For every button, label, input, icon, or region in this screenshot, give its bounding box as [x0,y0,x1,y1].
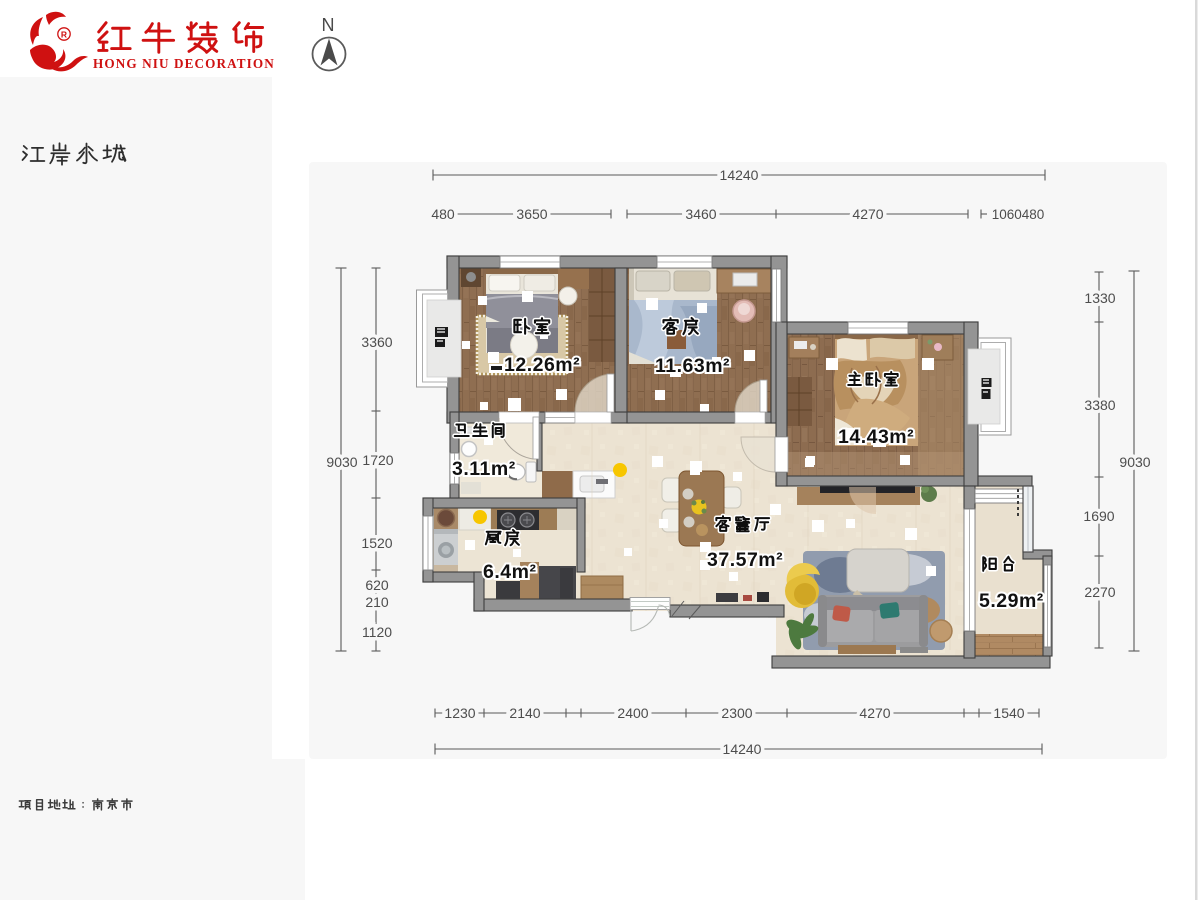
svg-text:N: N [322,15,335,35]
svg-text:1120: 1120 [362,624,392,640]
svg-text:3650: 3650 [516,206,547,222]
svg-text:9030: 9030 [1119,454,1150,470]
svg-text:1690: 1690 [1083,508,1114,524]
svg-text:6.4m²: 6.4m² [483,561,536,583]
svg-text:11.63m²: 11.63m² [655,355,730,377]
svg-text:14240: 14240 [723,741,762,757]
svg-text:620: 620 [365,577,389,593]
svg-text:3460: 3460 [685,206,716,222]
svg-text:1230: 1230 [444,705,475,721]
svg-text:37.57m²: 37.57m² [707,549,783,571]
svg-text:HONG NIU DECORATION: HONG NIU DECORATION [93,56,275,71]
svg-text:12.26m²: 12.26m² [504,354,580,376]
svg-text:1060480: 1060480 [992,207,1045,222]
svg-text:4270: 4270 [852,206,883,222]
svg-text:5.29m²: 5.29m² [979,590,1044,612]
svg-text:14.43m²: 14.43m² [838,426,914,448]
svg-text:3380: 3380 [1084,397,1115,413]
svg-text:2140: 2140 [509,705,540,721]
svg-text:480: 480 [431,206,455,222]
svg-text:9030: 9030 [326,454,357,470]
svg-text:4270: 4270 [859,705,890,721]
svg-text:3360: 3360 [361,334,392,350]
svg-text:210: 210 [365,594,389,610]
svg-text:2270: 2270 [1084,584,1115,600]
svg-text:2400: 2400 [617,705,648,721]
svg-text:R: R [61,29,67,39]
svg-text:2300: 2300 [721,705,752,721]
svg-text:3.11m²: 3.11m² [452,458,516,480]
svg-text:14240: 14240 [720,167,759,183]
svg-text:1540: 1540 [993,705,1024,721]
svg-text:1520: 1520 [361,535,392,551]
svg-text:1330: 1330 [1084,290,1115,306]
svg-text:1720: 1720 [362,452,393,468]
